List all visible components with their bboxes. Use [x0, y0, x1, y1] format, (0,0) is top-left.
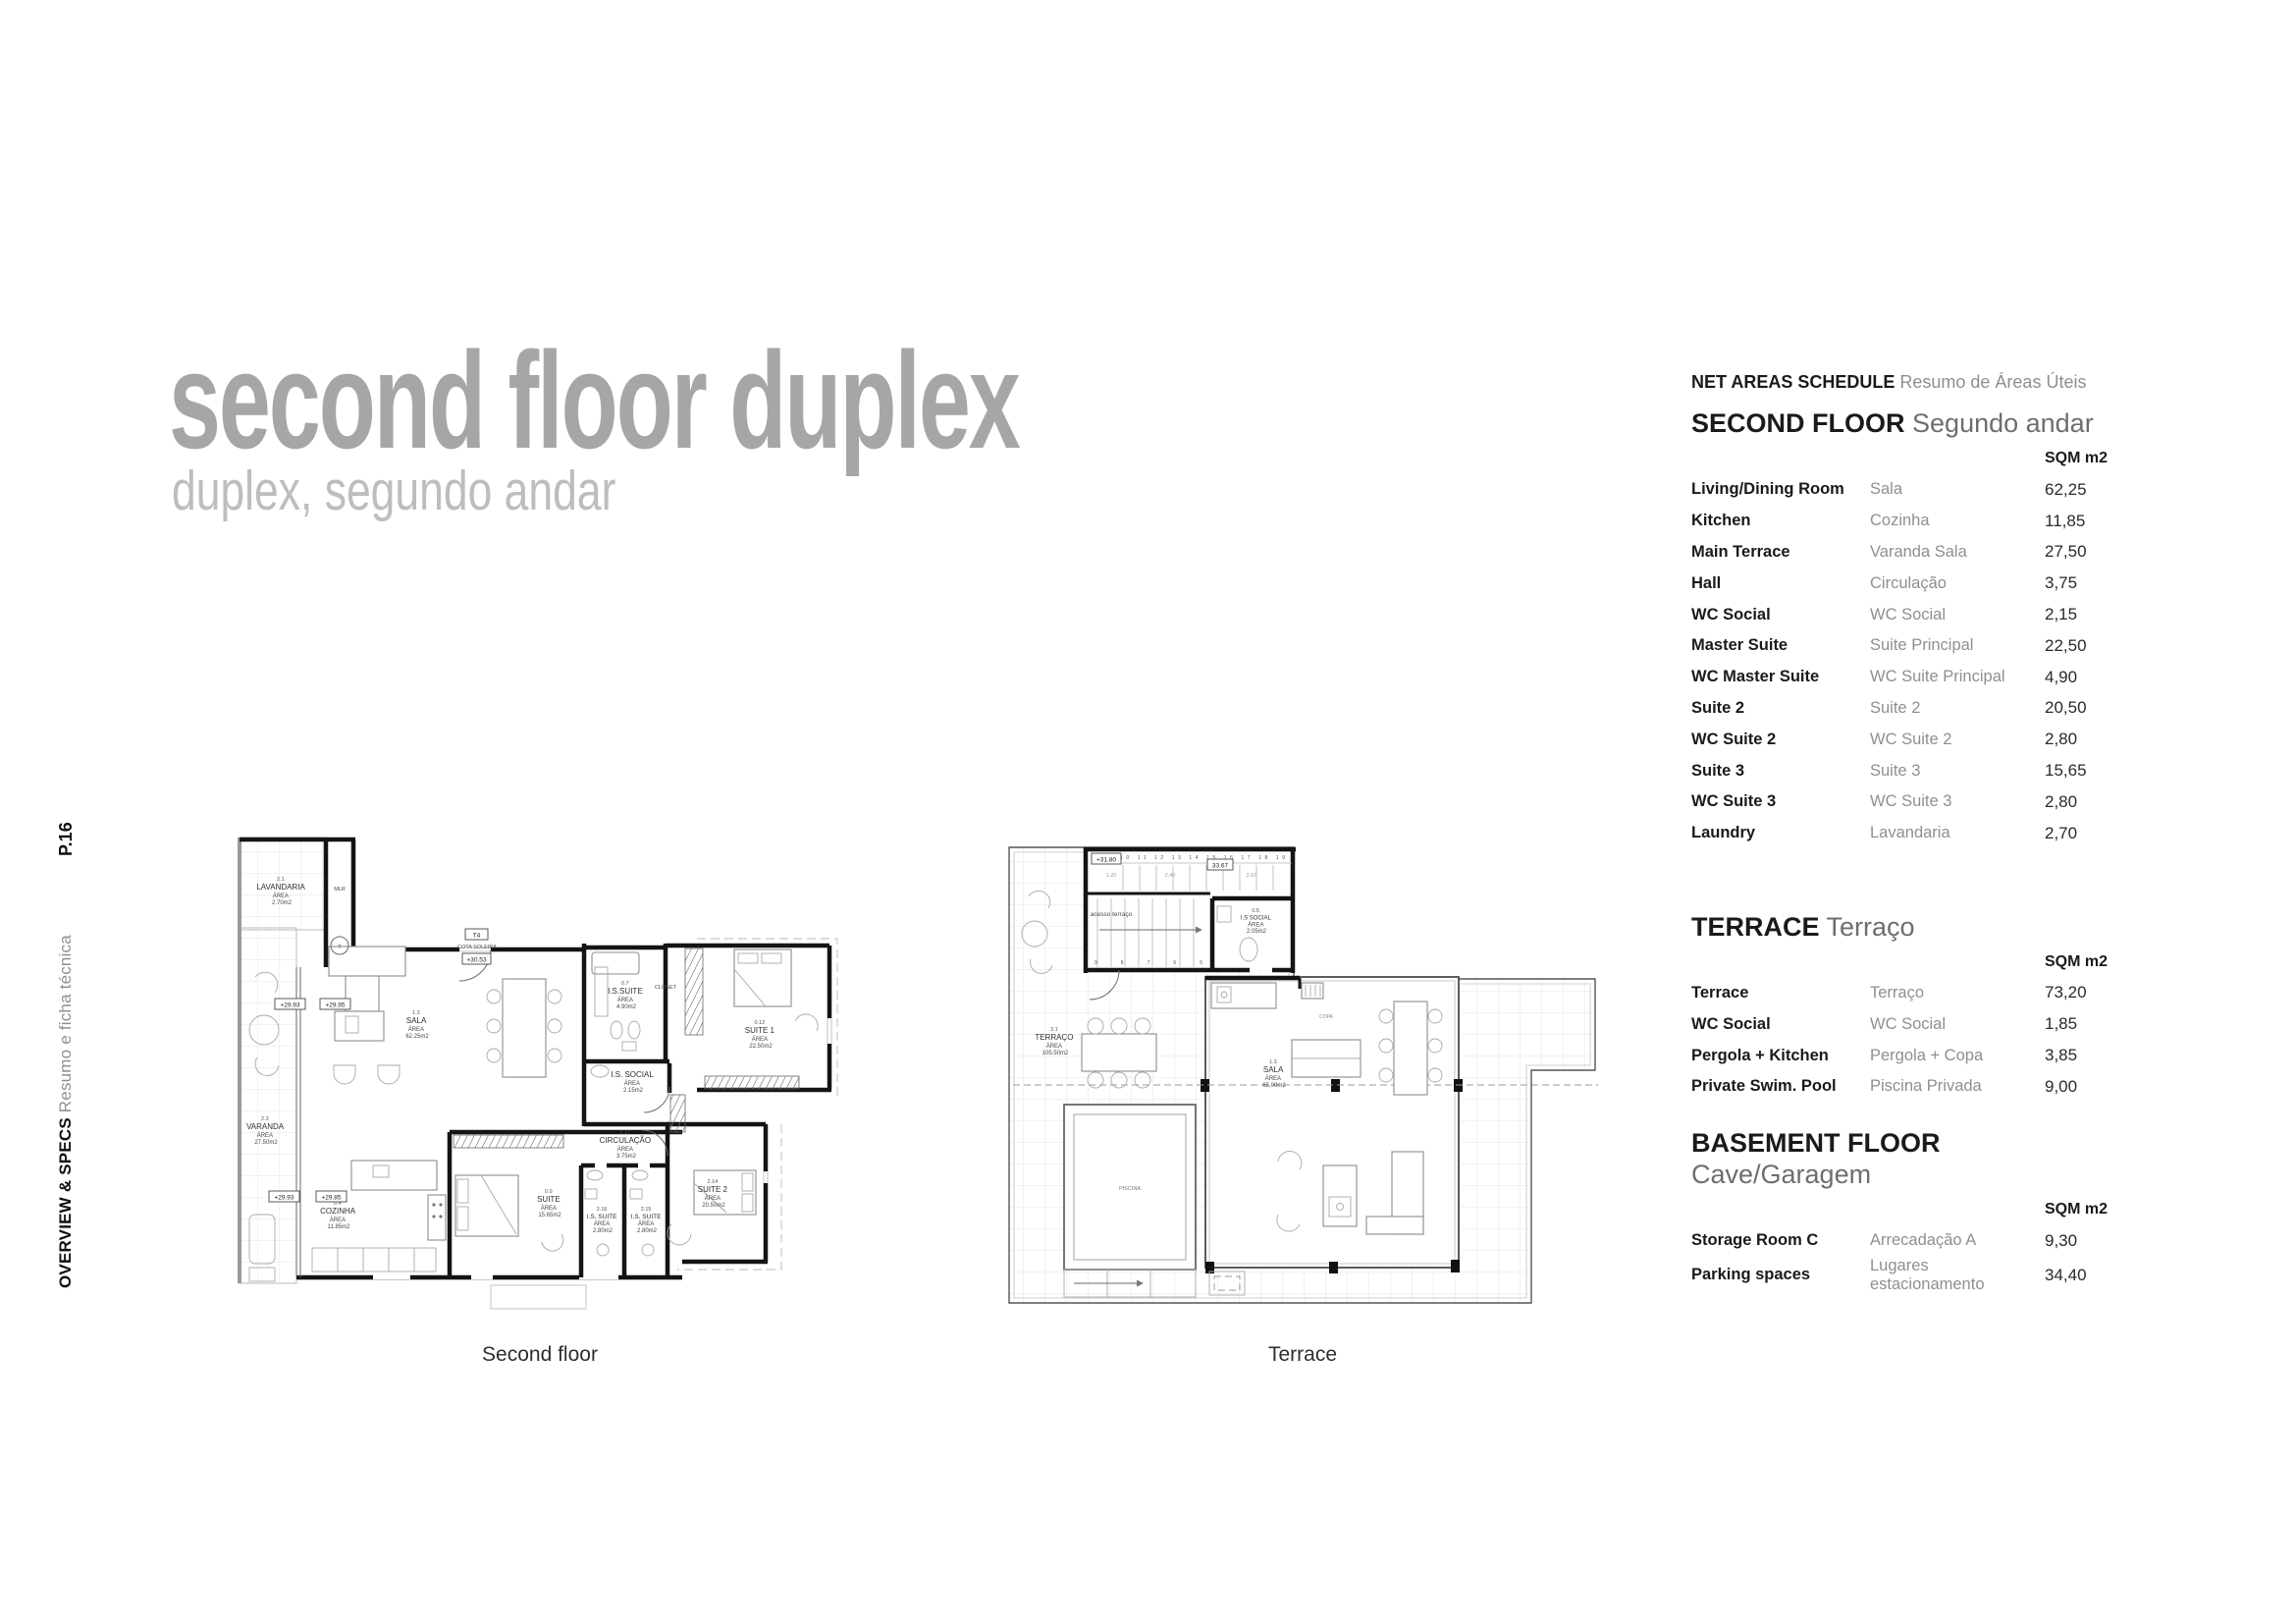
row-label-en: Suite 2 — [1691, 699, 1870, 718]
row-label-en: Private Swim. Pool — [1691, 1077, 1870, 1096]
row-value-sqm: 73,20 — [2045, 983, 2123, 1002]
row-label-en: Master Suite — [1691, 636, 1870, 655]
row-label-pt: Arrecadação A — [1870, 1231, 2019, 1250]
row-value-sqm: 2,15 — [2045, 605, 2123, 624]
row-label-en: Pergola + Kitchen — [1691, 1047, 1870, 1065]
table-row: Kitchen Cozinha 11,85 — [1691, 506, 2123, 537]
row-label-pt: Suite Principal — [1870, 636, 2019, 655]
table-row: WC Suite 3 WC Suite 3 2,80 — [1691, 786, 2123, 818]
floor-plan-terrace: 10 11 12 13 14 15 16 17 18 19 9 8 7 6 5 … — [1001, 839, 1620, 1330]
table-row: Master Suite Suite Principal 22,50 — [1691, 630, 2123, 662]
floor-plan-second-floor: 2.1 LAVANDARIA ÁREA 2.70m2 2.3 VARANDA Á… — [236, 830, 874, 1311]
row-value-sqm: 2,80 — [2045, 792, 2123, 812]
row-label-en: WC Suite 3 — [1691, 792, 1870, 811]
row-value-sqm: 2,80 — [2045, 730, 2123, 749]
marker-entry-level: +30.53 — [466, 957, 486, 964]
row-value-sqm: 2,70 — [2045, 824, 2123, 843]
row-label-pt: Suite 2 — [1870, 699, 2019, 718]
dim-2: 2.40 — [1165, 873, 1176, 879]
area-rows: Storage Room C Arrecadação A 9,30 Parkin… — [1691, 1225, 2123, 1294]
row-label-pt: WC Suite 3 — [1870, 792, 2019, 811]
table-row: WC Social WC Social 1,85 — [1691, 1008, 2123, 1040]
page-title: second floor duplex — [169, 332, 1019, 469]
cota-soleira-label: COTA SOLEIRA — [457, 945, 497, 950]
page-number: P.16 — [56, 822, 77, 856]
row-label-pt: Sala — [1870, 480, 2019, 499]
mlr-label: MLR — [334, 887, 346, 893]
table-row: Laundry Lavandaria 2,70 — [1691, 818, 2123, 849]
room-label-sala: 1.3 SALA ÁREA 62.25m2 — [405, 1007, 429, 1040]
marker-level-4: +29.85 — [321, 1195, 341, 1202]
table-row: Pergola + Kitchen Pergola + Copa 3,85 — [1691, 1040, 2123, 1071]
table-row: Storage Room C Arrecadação A 9,30 — [1691, 1225, 2123, 1257]
marker-level-1: +29.93 — [280, 1002, 299, 1009]
closet-label: CLOSET — [655, 985, 677, 991]
row-label-en: Parking spaces — [1691, 1266, 1870, 1284]
room-label-is-suite-216: 2.16 I.S. SUITE ÁREA 2.80m2 — [587, 1206, 619, 1234]
room-label-suite1: 0.12 SUITE 1 ÁREA 22.50m2 — [745, 1017, 776, 1050]
row-label-pt: Terraço — [1870, 984, 2019, 1002]
marker-33-67: 33.67 — [1212, 863, 1229, 870]
sidebar-subtitle: Resumo e ficha técnica — [56, 935, 75, 1112]
row-label-en: Main Terrace — [1691, 543, 1870, 562]
section-title: BASEMENT FLOOR Cave/Garagem — [1691, 1127, 2123, 1190]
copa-label: COPA — [1319, 1014, 1333, 1020]
schedule-heading: NET AREAS SCHEDULE Resumo de Áreas Úteis — [1691, 371, 2123, 393]
table-row: Private Swim. Pool Piscina Privada 9,00 — [1691, 1071, 2123, 1103]
row-label-en: Living/Dining Room — [1691, 480, 1870, 499]
row-value-sqm: 3,85 — [2045, 1046, 2123, 1065]
sidebar-section-label: OVERVIEW & SPECS Resumo e ficha técnica — [56, 935, 76, 1288]
section-terrace: TERRACE Terraço SQM m2 Terrace Terraço 7… — [1691, 911, 2123, 1103]
room-label-is-suite: 0.7 I.S.SUITE ÁREA 4.90m2 — [608, 978, 645, 1010]
row-label-pt: WC Social — [1870, 1015, 2019, 1034]
unit-label: SQM m2 — [1691, 1201, 2123, 1220]
row-label-en: WC Social — [1691, 606, 1870, 624]
row-label-en: WC Suite 2 — [1691, 731, 1870, 749]
schedule-heading-en: NET AREAS SCHEDULE — [1691, 372, 1895, 392]
row-label-en: Hall — [1691, 574, 1870, 593]
row-value-sqm: 11,85 — [2045, 512, 2123, 531]
unit-label: SQM m2 — [1691, 953, 2123, 973]
row-label-pt: Varanda Sala — [1870, 543, 2019, 562]
room-label-cozinha: 0.4 COZINHA ÁREA 11.85m2 — [320, 1198, 357, 1230]
table-row: WC Social WC Social 2,15 — [1691, 599, 2123, 630]
row-label-pt: WC Social — [1870, 606, 2019, 624]
row-label-en: WC Social — [1691, 1015, 1870, 1034]
row-value-sqm: 9,30 — [2045, 1231, 2123, 1251]
row-label-pt: WC Suite Principal — [1870, 668, 2019, 686]
area-rows: Living/Dining Room Sala 62,25 Kitchen Co… — [1691, 474, 2123, 849]
dim-3: 2.67 — [1247, 873, 1257, 879]
area-rows: Terrace Terraço 73,20 WC Social WC Socia… — [1691, 978, 2123, 1103]
row-label-pt: Suite 3 — [1870, 762, 2019, 781]
table-row: Terrace Terraço 73,20 — [1691, 978, 2123, 1009]
stair-numbers-up: 10 11 12 13 14 15 16 17 18 19 — [1120, 855, 1285, 861]
row-value-sqm: 9,00 — [2045, 1077, 2123, 1097]
row-label-pt: Circulação — [1870, 574, 2019, 593]
sidebar-title: OVERVIEW & SPECS — [56, 1117, 75, 1288]
row-label-pt: Cozinha — [1870, 512, 2019, 530]
section-second-floor: SECOND FLOOR Segundo andar SQM m2 Living… — [1691, 407, 2123, 849]
room-label-is-social: I.S. SOCIAL ÁREA 2.15m2 — [611, 1070, 656, 1094]
table-row: WC Suite 2 WC Suite 2 2,80 — [1691, 724, 2123, 755]
row-value-sqm: 34,40 — [2045, 1266, 2123, 1285]
marker-level-2: +29.95 — [325, 1002, 345, 1009]
table-row: Suite 2 Suite 2 20,50 — [1691, 693, 2123, 725]
row-value-sqm: 15,65 — [2045, 761, 2123, 781]
row-label-pt: Piscina Privada — [1870, 1077, 2019, 1096]
row-label-pt: Lugares estacionamento — [1870, 1257, 2019, 1294]
plan-caption-second-floor: Second floor — [432, 1343, 648, 1367]
row-value-sqm: 1,85 — [2045, 1014, 2123, 1034]
table-row: Parking spaces Lugares estacionamento 34… — [1691, 1257, 2123, 1294]
piscina-label: PISCINA — [1119, 1186, 1141, 1192]
section-basement: BASEMENT FLOOR Cave/Garagem SQM m2 Stora… — [1691, 1127, 2123, 1294]
marker-t4: T4 — [473, 933, 481, 940]
row-label-en: Terrace — [1691, 984, 1870, 1002]
acesso-terraco-label: acesso terraço — [1091, 911, 1133, 918]
room-label-suite3: 0.9 SUITE ÁREA 15.65m2 — [537, 1186, 562, 1218]
row-label-pt: Lavandaria — [1870, 824, 2019, 842]
marker-level-3: +29.93 — [274, 1195, 294, 1202]
table-row: Main Terrace Varanda Sala 27,50 — [1691, 537, 2123, 568]
row-label-en: Kitchen — [1691, 512, 1870, 530]
row-value-sqm: 27,50 — [2045, 542, 2123, 562]
row-label-pt: Pergola + Copa — [1870, 1047, 2019, 1065]
unit-label: SQM m2 — [1691, 450, 2123, 469]
table-row: Hall Circulação 3,75 — [1691, 568, 2123, 599]
brochure-page: P.16 OVERVIEW & SPECS Resumo e ficha téc… — [0, 0, 2296, 1624]
row-label-en: Storage Room C — [1691, 1231, 1870, 1250]
dim-1: 1.20 — [1106, 873, 1117, 879]
row-value-sqm: 22,50 — [2045, 636, 2123, 656]
section-title: SECOND FLOOR Segundo andar — [1691, 407, 2123, 439]
row-value-sqm: 3,75 — [2045, 573, 2123, 593]
marker-terrace-level: +31.80 — [1096, 857, 1116, 864]
room-label-is-suite-215: 2.15 I.S. SUITE ÁREA 2.80m2 — [631, 1206, 664, 1234]
section-title: TERRACE Terraço — [1691, 911, 2123, 943]
table-row: Suite 3 Suite 3 15,65 — [1691, 755, 2123, 786]
page-subtitle: duplex, segundo andar — [172, 463, 615, 519]
row-label-en: Laundry — [1691, 824, 1870, 842]
row-value-sqm: 20,50 — [2045, 698, 2123, 718]
table-row: WC Master Suite WC Suite Principal 4,90 — [1691, 662, 2123, 693]
schedule-heading-pt: Resumo de Áreas Úteis — [1899, 372, 2086, 392]
net-areas-schedule: NET AREAS SCHEDULE Resumo de Áreas Úteis… — [1691, 371, 2123, 1293]
table-row: Living/Dining Room Sala 62,25 — [1691, 474, 2123, 506]
row-label-en: Suite 3 — [1691, 762, 1870, 781]
row-value-sqm: 4,90 — [2045, 668, 2123, 687]
row-label-pt: WC Suite 2 — [1870, 731, 2019, 749]
row-label-en: WC Master Suite — [1691, 668, 1870, 686]
plan-caption-terrace: Terrace — [1195, 1343, 1411, 1367]
row-value-sqm: 62,25 — [2045, 480, 2123, 500]
